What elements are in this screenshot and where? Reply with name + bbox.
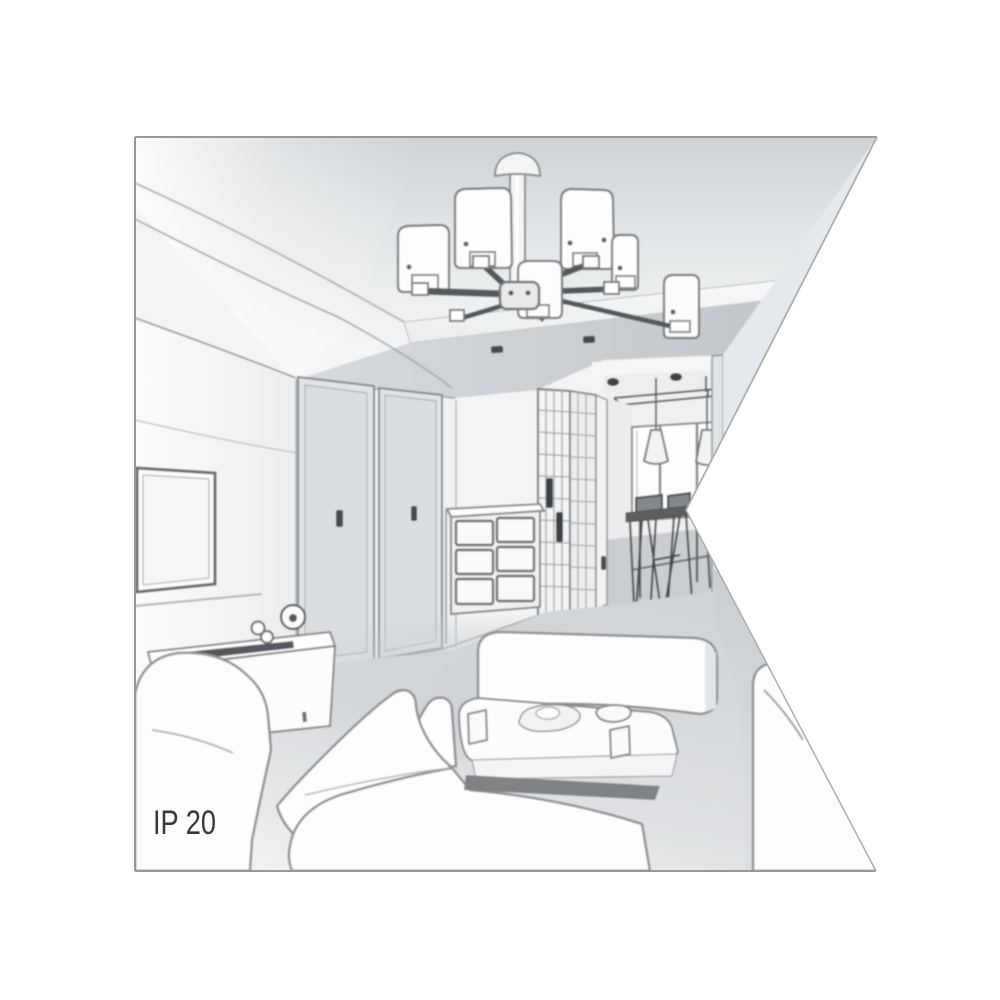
- svg-text:IP 20: IP 20: [153, 804, 216, 842]
